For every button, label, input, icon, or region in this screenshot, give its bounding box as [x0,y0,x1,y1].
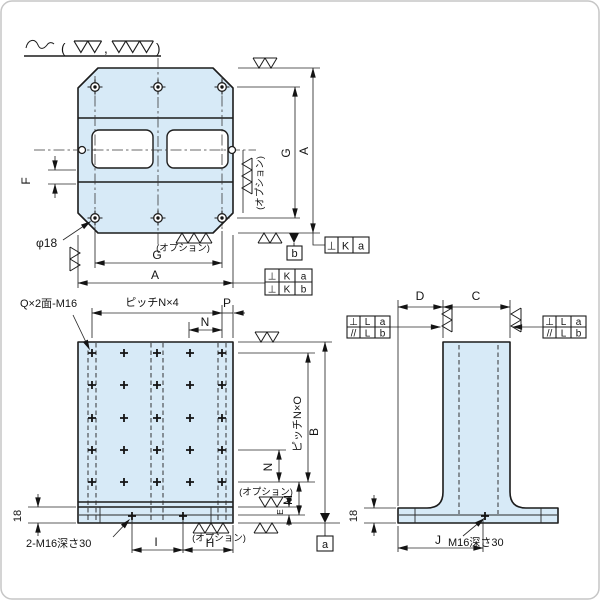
fcf-tolerance: K [284,285,291,296]
dim-18-label: 18 [12,510,24,522]
fcf-side-left: ⊥ L a // L b [347,316,390,340]
dim-F-label: F [19,177,33,184]
fcf-side-right: ⊥ L a // L b [543,316,586,340]
drawing-canvas: ( , ) [0,0,600,600]
dim-J-label: J [435,533,441,547]
option-label-bottom: (オプション) [192,533,246,544]
fcf-symbol: // [547,329,553,340]
option-label-right: (オプション) [239,487,293,498]
dim-N-top-label: N [201,315,210,329]
fcf-symbol: ⊥ [349,317,358,328]
dim-A-bottom-label: A [151,268,159,282]
front-view-body [78,342,233,523]
dim-B-label: B [307,428,321,436]
fcf-symbol: ⊥ [268,272,277,283]
fcf-tolerance: L [561,317,567,328]
fcf-datum: b [576,329,582,340]
fcf-datum: b [301,285,307,296]
fcf-tolerance: K [284,272,291,283]
fcf-symbol: ⊥ [327,241,337,253]
dim-E-label: E [275,509,285,515]
option-label-right: (オプション) [255,156,266,210]
dim-G-right-label: G [279,148,293,157]
dim-C-label: C [472,289,481,303]
finish-note-open: ( [61,41,66,56]
fcf-datum: a [380,317,386,328]
fcf-tolerance: K [342,241,350,253]
dim-I-label: I [154,535,157,549]
hole-dia-label: φ18 [36,236,57,250]
fcf-tolerance: L [365,317,371,328]
fcf-tolerance: L [365,329,371,340]
dim-D-label: D [416,289,425,303]
dim-N-right-label: N [261,463,275,472]
fcf-datum: b [380,329,386,340]
datum-b-label: b [291,248,297,260]
fcf-datum: a [358,241,365,253]
dim-P-label: P [223,296,231,310]
datum-a-label: a [322,539,329,551]
finish-note-close: ) [156,41,161,56]
fcf-datum: a [576,317,582,328]
fcf-datum: a [301,272,307,283]
dim-A-right-label: A [297,147,311,155]
fcf-tolerance: L [561,329,567,340]
fcf-symbol: ⊥ [545,317,554,328]
side-pin-hole-icon [229,147,236,154]
dim-pitch-right-label: ピッチN×O [291,396,304,452]
fcf-symbol: // [351,329,357,340]
fcf-symbol: ⊥ [268,285,277,296]
finish-note-comma: , [104,41,108,56]
fcf-top-view-double: ⊥ K a ⊥ K b [265,269,312,296]
base-tap-label: M16深さ30 [448,536,504,549]
dim-pitch-top-label: ピッチN×4 [125,296,179,309]
option-label-bottom: (オプション) [156,243,210,254]
dim-H-label: H [206,536,215,550]
window-cutout [167,130,228,168]
base-tap-label: 2-M16深さ30 [26,537,91,550]
window-cutout [92,130,153,168]
dim-18-label: 18 [348,510,360,522]
tap-pattern-label: Q×2面-M16 [20,298,77,310]
side-pin-hole-icon [79,147,86,154]
